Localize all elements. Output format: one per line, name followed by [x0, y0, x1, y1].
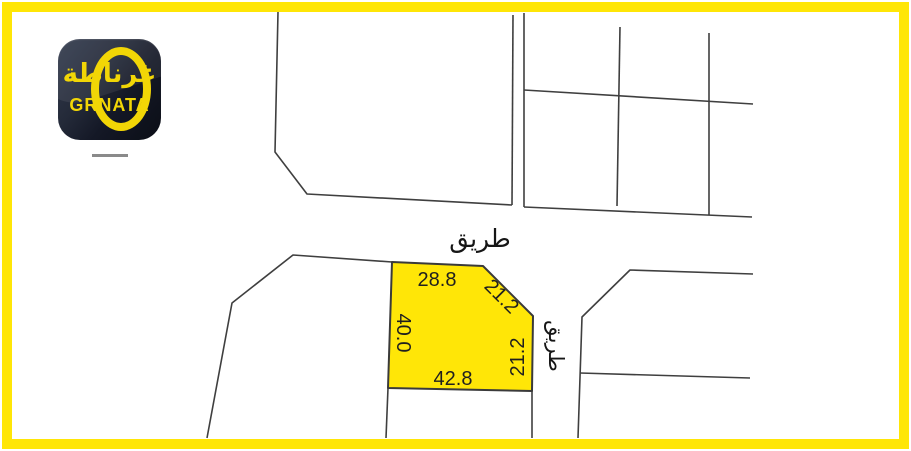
- parcel-line-grid-horizontal-top: [524, 90, 753, 104]
- dimension-left: 40.0: [392, 314, 414, 353]
- dimension-top: 28.8: [418, 269, 457, 291]
- parcel-line-below-plot-left: [386, 388, 388, 438]
- parcel-line-topleft-block: [275, 12, 512, 205]
- parcel-line-left-block: [207, 255, 392, 438]
- dimension-bottom: 42.8: [434, 368, 473, 390]
- plot-map-flyer: طريق طريق 28.8 21.2 40.0 21.2 42.8 غرناط…: [0, 0, 911, 451]
- grnata-logo: غرناطة GRNATA: [58, 39, 161, 140]
- parcel-line-right-block-divider: [580, 373, 750, 378]
- logo-latin-wordmark: GRNATA: [58, 95, 161, 116]
- parcel-line-grid-vertical-a: [617, 27, 620, 206]
- dimension-right: 21.2: [507, 338, 529, 377]
- parcel-line-lane-left: [512, 15, 513, 205]
- logo-underline-dash: [92, 154, 128, 157]
- parcel-line-right-block: [578, 270, 753, 438]
- road-label-right: طريق: [544, 320, 568, 372]
- parcel-line-grid-horizontal-bottom: [524, 207, 752, 217]
- logo-arabic-wordmark: غرناطة: [58, 53, 161, 95]
- road-label-top: طريق: [449, 224, 511, 253]
